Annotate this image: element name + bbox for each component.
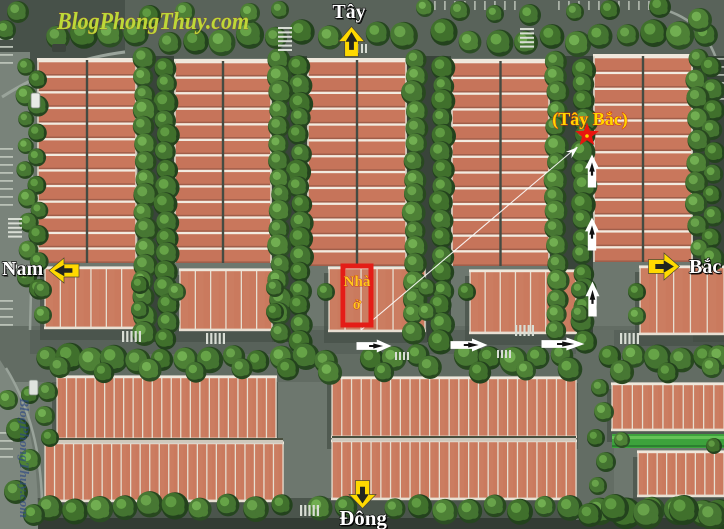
svg-text:Tây: Tây — [332, 1, 365, 23]
svg-text:Bắc: Bắc — [689, 256, 721, 278]
svg-text:Đông: Đông — [339, 506, 387, 529]
svg-text:BlogPhongThuy.com: BlogPhongThuy.com — [17, 397, 32, 518]
svg-text:BlogPhongThuy.com: BlogPhongThuy.com — [56, 9, 249, 35]
svg-text:Nhà: Nhà — [344, 274, 371, 290]
svg-text:ở: ở — [353, 297, 362, 313]
svg-text:Nam: Nam — [2, 258, 43, 280]
svg-text:(Tây Bắc): (Tây Bắc) — [552, 109, 628, 130]
